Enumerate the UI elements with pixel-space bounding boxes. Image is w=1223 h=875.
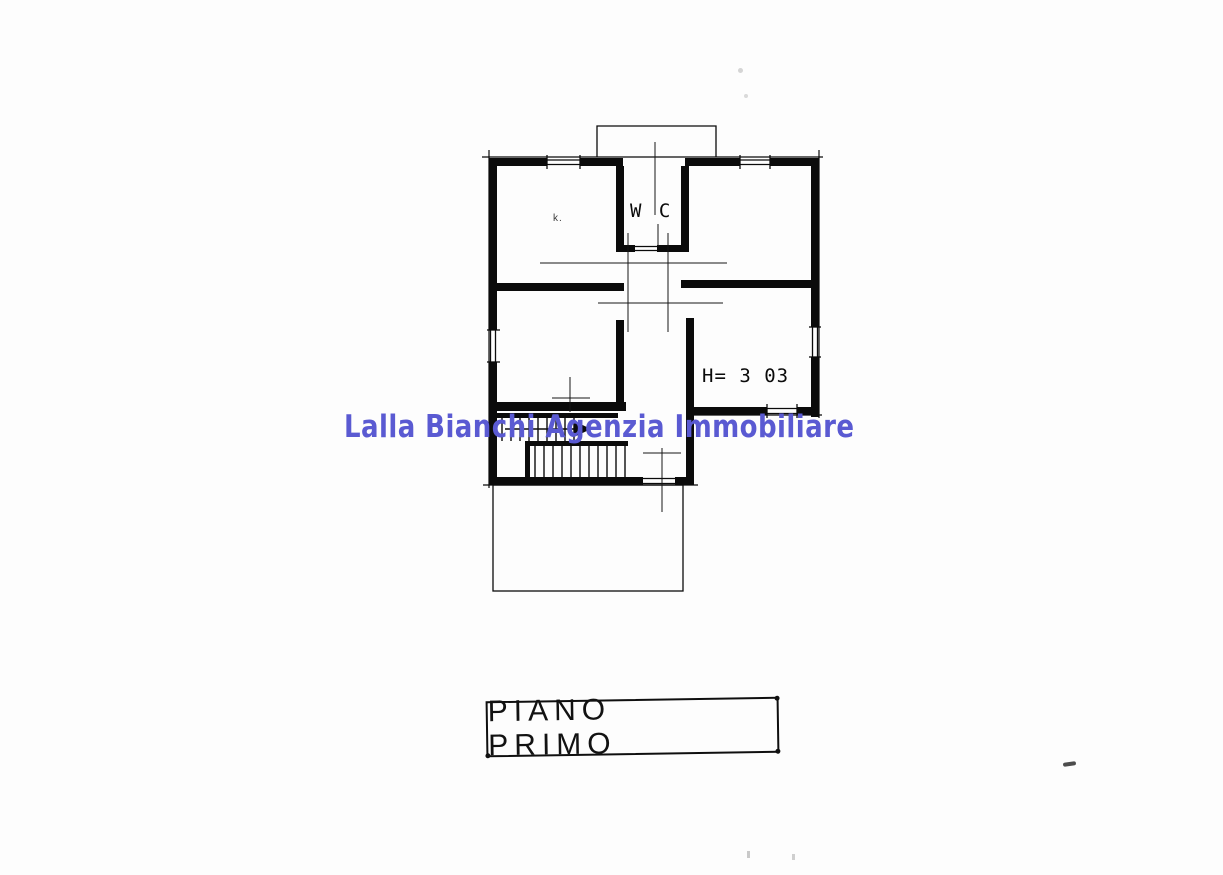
scan-artifact-mark: k.: [553, 213, 563, 224]
corner-dot: [775, 696, 780, 701]
scan-speck: [744, 94, 748, 98]
centerlines: [540, 142, 727, 512]
floor-title: PIANO PRIMO: [487, 691, 777, 764]
terrace-outline: [493, 485, 683, 591]
balcony-outline: [597, 126, 716, 157]
scan-speck: [792, 854, 795, 860]
corner-dot: [485, 753, 490, 758]
agency-watermark: Lalla Bianchi Agenzia Immobiliare: [344, 409, 854, 445]
corner-dot: [775, 749, 780, 754]
wc-room-label: W C: [630, 200, 673, 222]
room-height-label: H= 3 03: [702, 365, 789, 387]
scan-speck: [738, 68, 743, 73]
scan-speck: [747, 851, 750, 858]
floor-title-box: PIANO PRIMO: [486, 697, 780, 758]
scanned-floorplan-page: W C H= 3 03 k. Lalla Bianchi Agenzia Imm…: [0, 0, 1223, 875]
